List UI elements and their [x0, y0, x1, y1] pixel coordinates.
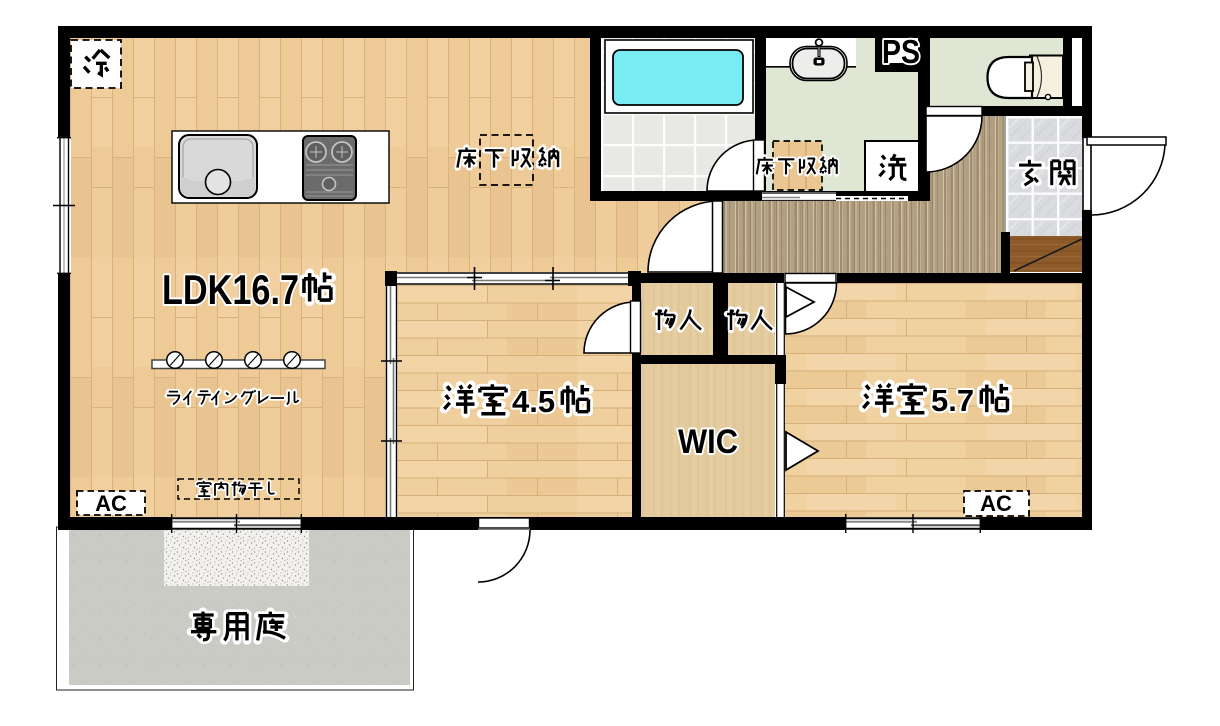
- svg-text:4.5: 4.5: [512, 384, 555, 419]
- svg-text:AC: AC: [980, 491, 1012, 516]
- svg-text:PS: PS: [882, 33, 920, 70]
- svg-text:AC: AC: [95, 491, 127, 516]
- svg-text:LDK16.7: LDK16.7: [162, 266, 299, 313]
- svg-text:5.7: 5.7: [931, 383, 974, 418]
- svg-text:WIC: WIC: [678, 423, 738, 461]
